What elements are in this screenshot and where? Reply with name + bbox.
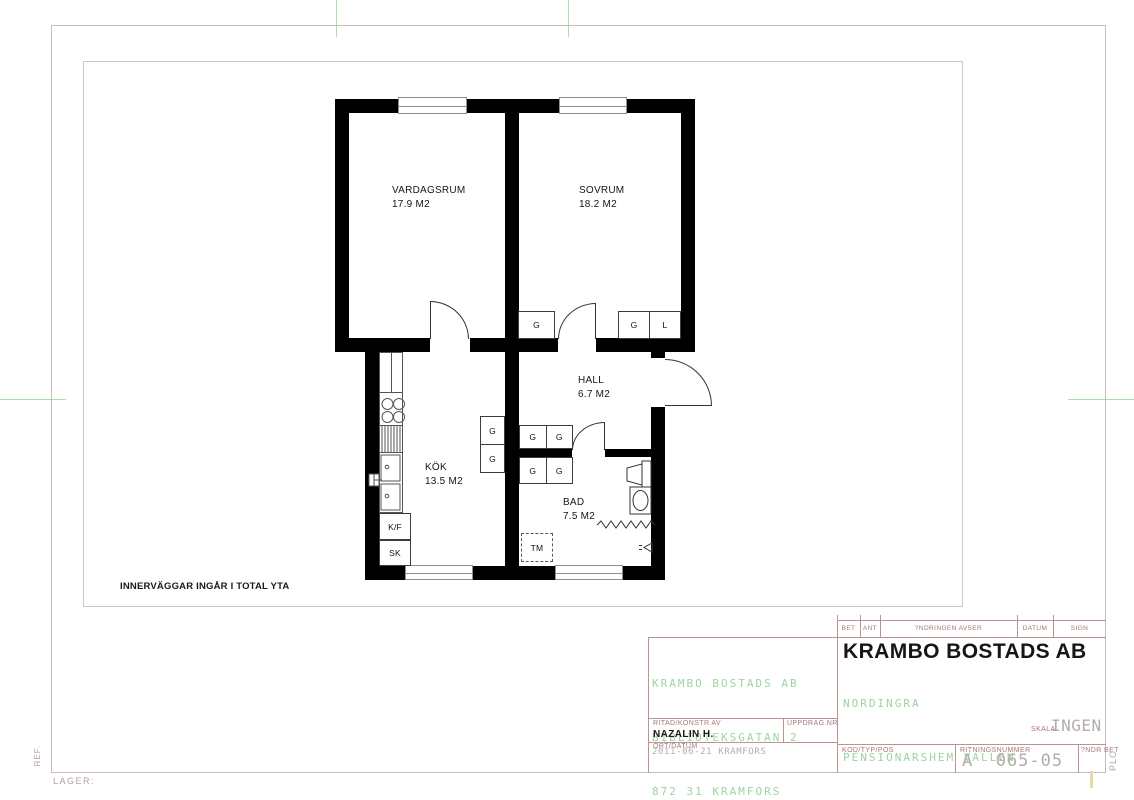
cabinet-label: G [519, 312, 554, 338]
ref-margin-label: REF. [33, 745, 42, 766]
room-label-sovrum: SOVRUM 18.2 M2 [579, 184, 624, 211]
window [559, 97, 627, 114]
room-area: 7.5 M2 [563, 510, 595, 524]
room-label-hall: HALL 6.7 M2 [578, 374, 610, 401]
room-area: 17.9 M2 [392, 198, 465, 212]
room-name: KÖK [425, 461, 463, 475]
ritad-konstr-label: RITAD/KONSTR AV [653, 720, 721, 727]
wall [651, 352, 665, 358]
ritningsnummer-value: A 065-05 [962, 751, 1063, 771]
cabinet-label: G [619, 312, 649, 338]
cabinet-sovrum-g: G [518, 311, 555, 339]
room-label-bad: BAD 7.5 M2 [563, 496, 595, 523]
plo-margin-label: PLO [1108, 750, 1118, 771]
revision-col-bet: BET [837, 625, 860, 632]
titleblock-line [1078, 744, 1079, 773]
kod-typ-pos-label: KOD/TYP/POS [842, 747, 894, 754]
titleblock-line [837, 620, 1106, 621]
window [405, 565, 473, 580]
cabinet-label: G [520, 426, 546, 448]
wall [505, 352, 519, 580]
cabinet-label: G [481, 444, 504, 472]
titleblock-line [648, 637, 649, 773]
ort-datum-value: 2011-06-21 KRAMFORS [652, 747, 766, 757]
cabinet-label: G [546, 426, 573, 448]
room-name: SOVRUM [579, 184, 624, 198]
cabinet-label: G [520, 458, 546, 483]
wall [505, 99, 519, 352]
room-area: 6.7 M2 [578, 388, 610, 402]
plan-note: INNERVÄGGAR INGÅR I TOTAL YTA [120, 581, 289, 592]
room-name: BAD [563, 496, 595, 510]
revision-col-sign: SIGN [1053, 625, 1106, 632]
titleblock-line [837, 615, 838, 773]
uppdrag-nr-label: UPPDRAG.NR [787, 720, 838, 727]
cabinet-hall-gg: G G [519, 425, 573, 449]
revision-col-datum: DATUM [1017, 625, 1053, 632]
address-line: KRAMBO BOSTADS AB [652, 675, 799, 693]
cabinet-kok-gg: G G [480, 416, 505, 473]
room-name: HALL [578, 374, 610, 388]
wall [681, 99, 695, 352]
room-area: 18.2 M2 [579, 198, 624, 212]
window [555, 565, 623, 580]
cabinet-label: G [481, 417, 504, 444]
lager-margin-label: LAGER: [53, 776, 95, 786]
wall [335, 99, 349, 352]
room-area: 13.5 M2 [425, 475, 463, 489]
project-description: NORDINGRA PENSIONARSHEM VALLEN LAGENHET … [843, 659, 1015, 800]
window [398, 97, 467, 114]
yellow-tick [1090, 771, 1093, 788]
cabinet-label: TM [522, 534, 552, 561]
wall [596, 338, 695, 352]
project-line: NORDINGRA [843, 695, 1015, 713]
room-label-kok: KÖK 13.5 M2 [425, 461, 463, 488]
washing-machine-tm: TM [521, 533, 553, 562]
wall [505, 449, 572, 457]
revision-col-andringen-avser: ?NDRINGEN AVSER [880, 625, 1017, 632]
drawing-sheet: G G L G G G G G G K/F SK TM [0, 0, 1134, 800]
address-line: 872 31 KRAMFORS [652, 783, 799, 800]
titleblock-line [648, 637, 1106, 638]
revision-col-ant: ANT [860, 625, 880, 632]
cabinet-label: G [546, 458, 573, 483]
cabinet-bad-gg: G G [519, 457, 573, 484]
room-name: VARDAGSRUM [392, 184, 465, 198]
cabinet-label: L [649, 312, 680, 338]
cabinet-sovrum-gl: G L [618, 311, 681, 339]
ritad-konstr-value: NAZALIN H. [653, 729, 714, 740]
kitchen-fixtures [365, 350, 415, 566]
wall [470, 338, 558, 352]
skala-value: INGEN [1051, 716, 1102, 735]
room-label-vardagsrum: VARDAGSRUM 17.9 M2 [392, 184, 465, 211]
